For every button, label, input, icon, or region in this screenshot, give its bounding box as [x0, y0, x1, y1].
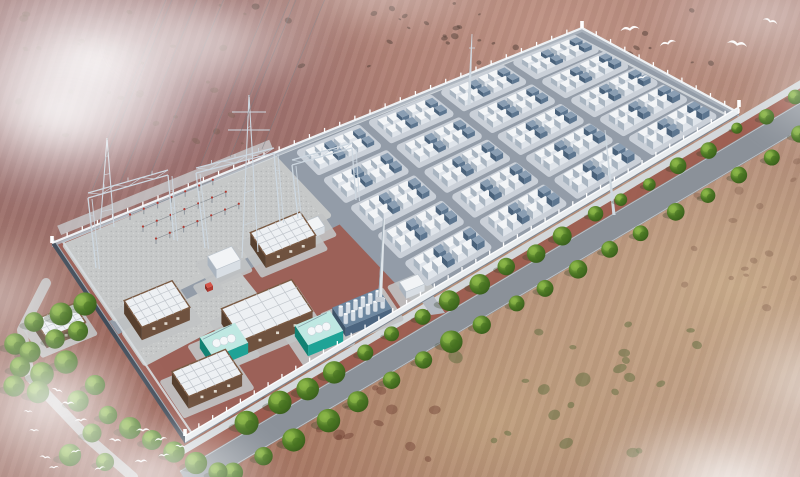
- bird: [109, 438, 122, 442]
- bird: [135, 459, 148, 462]
- bird: [763, 17, 779, 25]
- tree: [21, 381, 49, 403]
- tree: [113, 417, 141, 439]
- tree: [91, 453, 114, 471]
- bird: [24, 410, 33, 413]
- tree: [137, 430, 162, 450]
- tree: [5, 357, 31, 377]
- bird: [727, 39, 748, 47]
- bird: [659, 39, 676, 47]
- tree: [158, 441, 185, 462]
- aerial-render-scene: [0, 0, 800, 477]
- facility-illustration: [0, 0, 800, 477]
- tree: [94, 406, 117, 425]
- tree: [0, 375, 25, 396]
- bird: [51, 387, 63, 393]
- bird: [49, 466, 59, 469]
- bird: [29, 429, 39, 432]
- tree: [53, 444, 81, 466]
- bird: [620, 25, 640, 32]
- tree: [62, 390, 89, 411]
- bird: [39, 455, 51, 460]
